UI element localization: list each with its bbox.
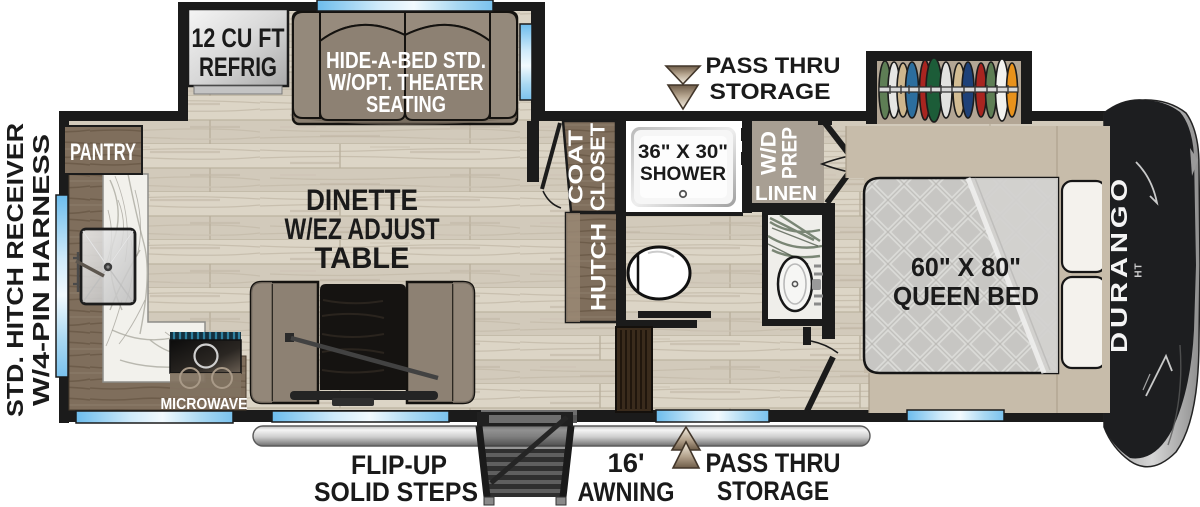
- svg-text:LINEN: LINEN: [755, 183, 817, 205]
- svg-text:HUTCH: HUTCH: [588, 223, 611, 311]
- svg-text:16': 16': [608, 448, 645, 478]
- svg-text:AWNING: AWNING: [578, 477, 675, 507]
- svg-text:FLIP-UP: FLIP-UP: [351, 450, 447, 480]
- svg-text:W/4-PIN HARNESS: W/4-PIN HARNESS: [28, 134, 54, 406]
- svg-text:QUEEN BED: QUEEN BED: [893, 281, 1039, 311]
- svg-text:36" X 30": 36" X 30": [638, 142, 728, 163]
- svg-text:STD. HITCH RECEIVER: STD. HITCH RECEIVER: [2, 123, 28, 417]
- svg-text:60" X 80": 60" X 80": [911, 252, 1021, 282]
- svg-text:SEATING: SEATING: [366, 91, 446, 117]
- svg-text:STORAGE: STORAGE: [710, 79, 831, 104]
- svg-text:12 CU FT: 12 CU FT: [192, 23, 285, 53]
- svg-text:COAT: COAT: [565, 130, 587, 204]
- svg-text:PASS THRU: PASS THRU: [706, 53, 841, 78]
- svg-text:REFRIG: REFRIG: [199, 52, 277, 82]
- svg-text:CLOSET: CLOSET: [587, 123, 609, 211]
- svg-text:PREP: PREP: [779, 127, 802, 179]
- svg-text:PANTRY: PANTRY: [70, 139, 136, 166]
- svg-text:SOLID STEPS: SOLID STEPS: [314, 477, 478, 507]
- svg-text:STORAGE: STORAGE: [717, 476, 829, 506]
- svg-text:PASS THRU: PASS THRU: [706, 448, 841, 478]
- svg-text:W/D: W/D: [758, 131, 781, 175]
- svg-text:TABLE: TABLE: [315, 242, 410, 275]
- svg-text:SHOWER: SHOWER: [640, 164, 726, 185]
- svg-text:HT: HT: [1134, 262, 1145, 277]
